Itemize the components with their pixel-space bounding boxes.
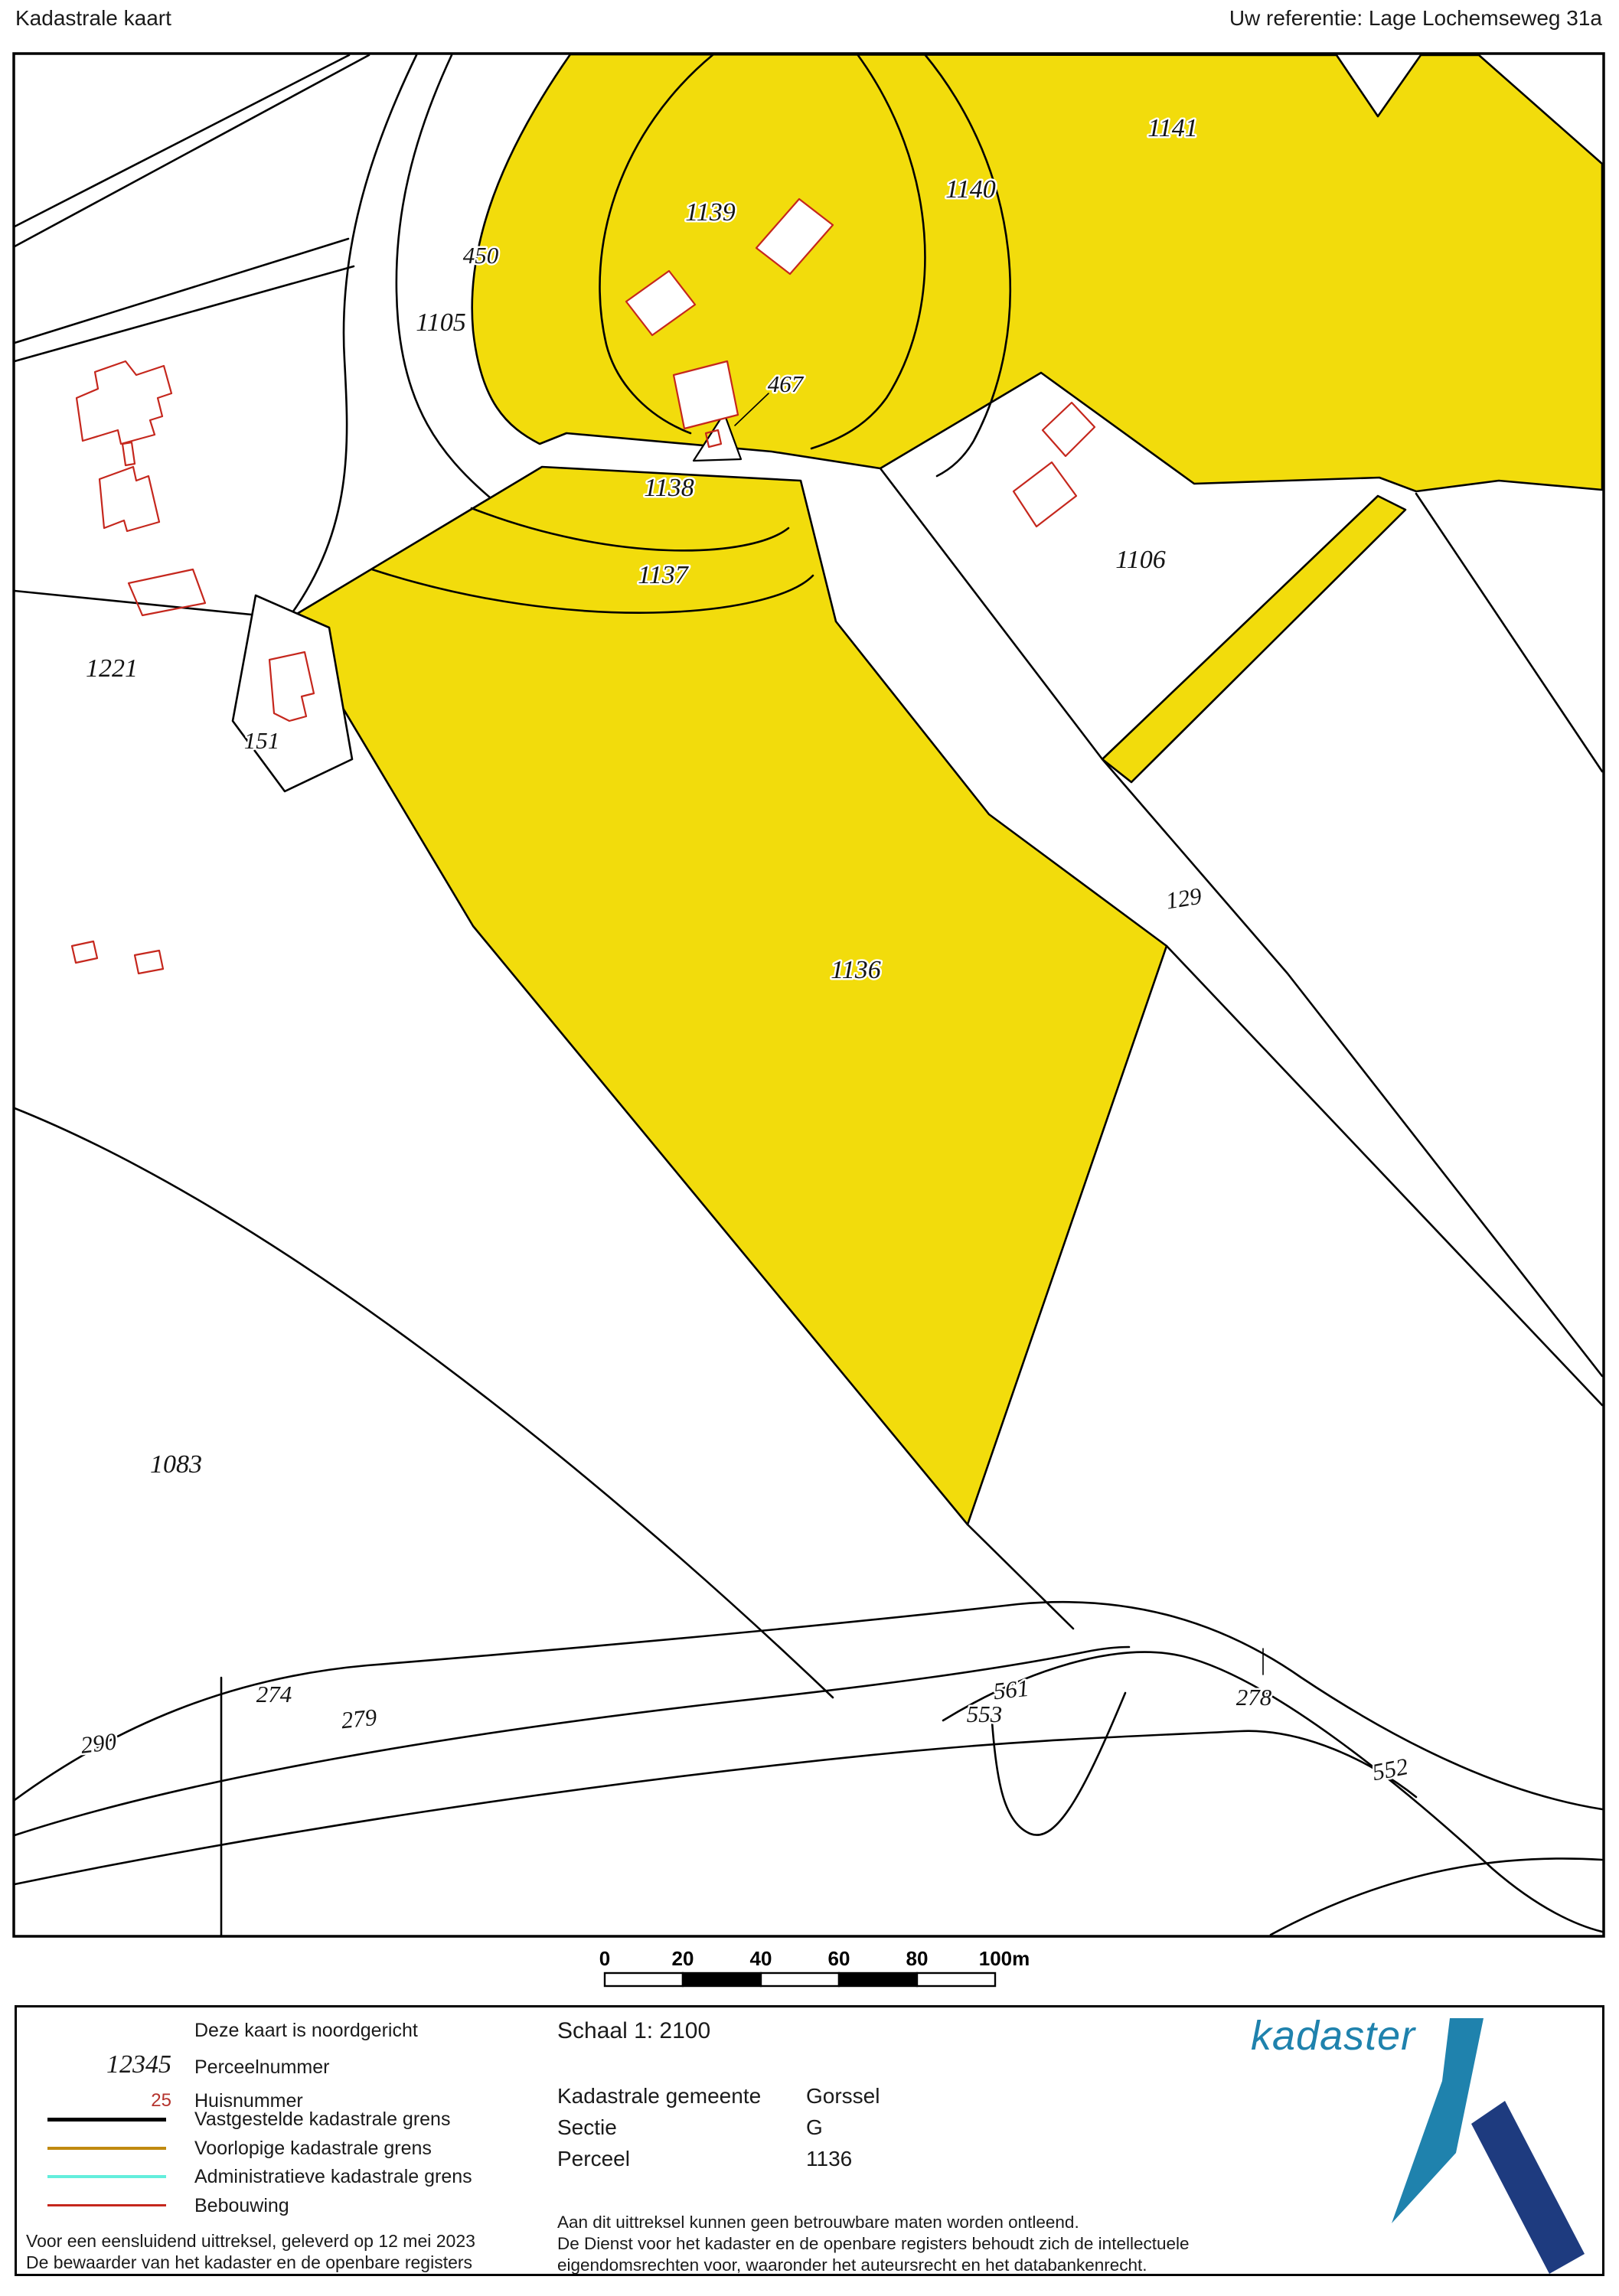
scale-tick-20: 20 <box>672 1947 694 1970</box>
legend-line-voorlopig <box>47 2147 166 2150</box>
info-label-sectie: Sectie <box>557 2115 617 2140</box>
legend-label-voorlopig: Voorlopige kadastrale grens <box>194 2138 432 2160</box>
info-label-perceel: Perceel <box>557 2147 630 2171</box>
legend-label-administratief: Administratieve kadastrale grens <box>194 2166 472 2188</box>
kadaster-logo-icon <box>1386 2014 1608 2274</box>
legend-line-bebouwing <box>47 2204 166 2206</box>
parcel-label-1106: 1106 <box>1115 546 1165 574</box>
info-label-gemeente: Kadastrale gemeente <box>557 2084 761 2108</box>
scale-text: Schaal 1: 2100 <box>557 2018 710 2044</box>
cadastral-map: 1141 1140 1139 450 1105 467 1138 1137 11… <box>0 0 1619 1948</box>
scale-tick-60: 60 <box>828 1947 850 1970</box>
parcel-label-553: 553 <box>967 1701 1003 1727</box>
scale-tick-100: 100m <box>979 1947 1030 1970</box>
legend-line-vastgesteld <box>47 2118 166 2122</box>
parcel-label-1221: 1221 <box>86 654 138 683</box>
parcel-label-1139: 1139 <box>685 198 735 227</box>
parcel-label-151: 151 <box>244 727 280 754</box>
parcel-label-129: 129 <box>1164 882 1203 915</box>
scale-bar-segments <box>605 1973 995 1986</box>
parcel-label-290: 290 <box>80 1727 119 1758</box>
parcel-label-1105: 1105 <box>416 308 465 337</box>
scale-tick-80: 80 <box>906 1947 929 1970</box>
parcel-label-1136: 1136 <box>831 956 880 984</box>
parcel-label-1141: 1141 <box>1147 114 1197 142</box>
legend-label-vastgesteld: Vastgestelde kadastrale grens <box>194 2108 450 2131</box>
north-note: Deze kaart is noordgericht <box>194 2020 418 2042</box>
issued-line1: Voor een eensluidend uittreksel, gelever… <box>26 2231 475 2252</box>
parcel-label-1140: 1140 <box>945 175 995 204</box>
info-value-sectie: G <box>806 2115 823 2140</box>
parcel-label-450: 450 <box>463 242 499 269</box>
issued-line2: De bewaarder van het kadaster en de open… <box>26 2252 472 2273</box>
parcel-label-1137: 1137 <box>638 561 689 589</box>
disclaimer-line1: Aan dit uittreksel kunnen geen betrouwba… <box>557 2213 1079 2232</box>
legend-line-administratief <box>47 2175 166 2178</box>
disclaimer-line3: eigendomsrechten voor, waaronder het aut… <box>557 2255 1147 2275</box>
parcel-label-278: 278 <box>1236 1684 1272 1711</box>
info-value-gemeente: Gorssel <box>806 2084 880 2108</box>
disclaimer-line2: De Dienst voor het kadaster en de openba… <box>557 2234 1190 2254</box>
footer-panel: Deze kaart is noordgericht 12345 Perceel… <box>15 2005 1604 2276</box>
scale-tick-0: 0 <box>599 1947 610 1970</box>
legend-label-perceelnummer: Perceelnummer <box>194 2056 329 2079</box>
parcel-label-279: 279 <box>340 1704 378 1734</box>
legend-symbol-huisnummer: 25 <box>87 2090 171 2112</box>
info-value-perceel: 1136 <box>806 2147 852 2171</box>
parcel-label-467: 467 <box>768 370 805 397</box>
parcel-label-274: 274 <box>256 1681 292 1707</box>
scale-tick-40: 40 <box>750 1947 772 1970</box>
parcel-label-1138: 1138 <box>644 474 694 502</box>
parcel-label-1083: 1083 <box>150 1450 202 1479</box>
legend-symbol-perceelnummer: 12345 <box>87 2050 171 2079</box>
legend-label-bebouwing: Bebouwing <box>194 2195 289 2217</box>
